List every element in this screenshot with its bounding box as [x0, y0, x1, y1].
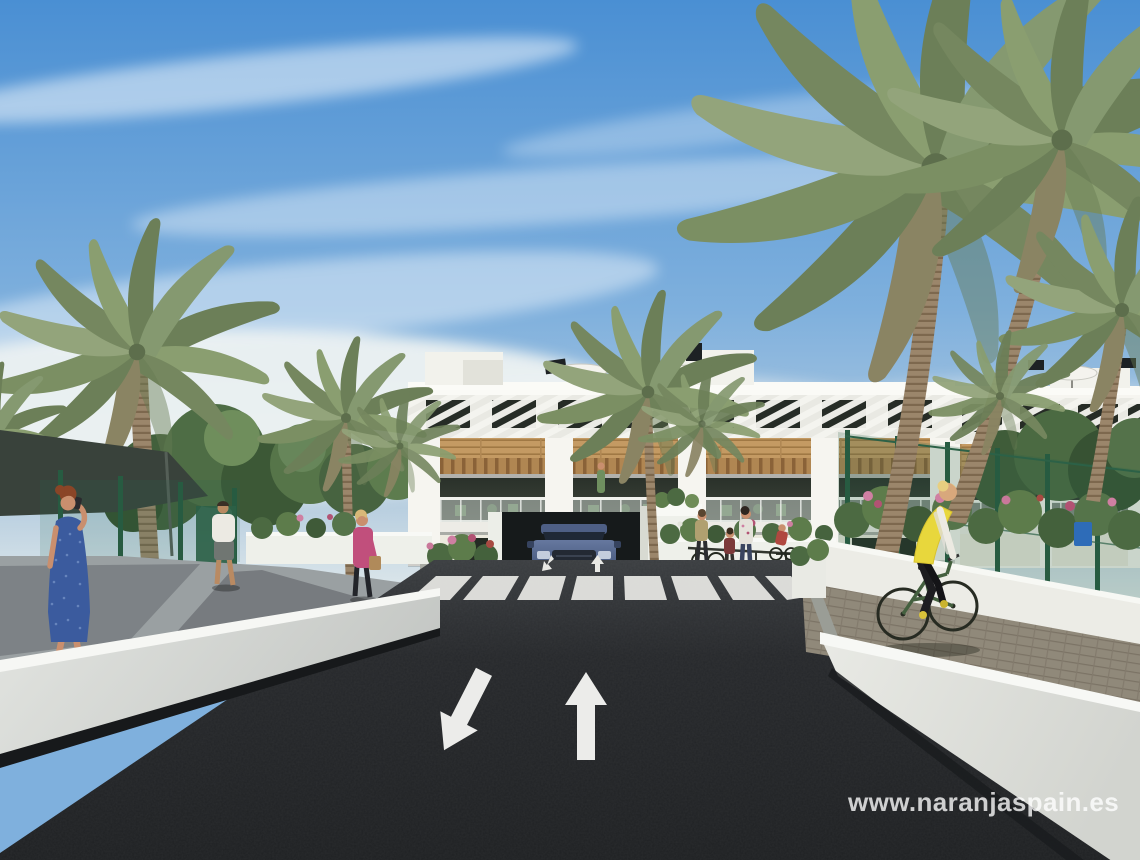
watermark-url: www.naranjaspain.es: [848, 787, 1116, 818]
blue-container: [1074, 522, 1092, 546]
render-canvas: www.naranjaspain.es: [0, 0, 1140, 860]
planter-wall-left: [246, 532, 432, 564]
balcony-person-green: [597, 462, 605, 493]
